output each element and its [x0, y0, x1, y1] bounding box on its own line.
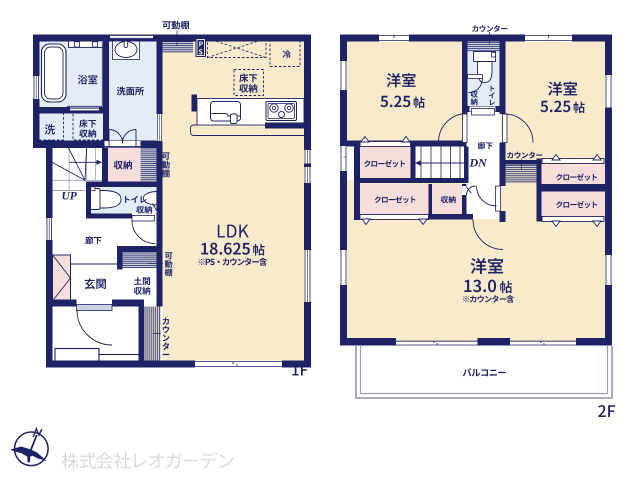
- svg-text:DN: DN: [469, 156, 489, 170]
- svg-text:UP: UP: [62, 191, 78, 203]
